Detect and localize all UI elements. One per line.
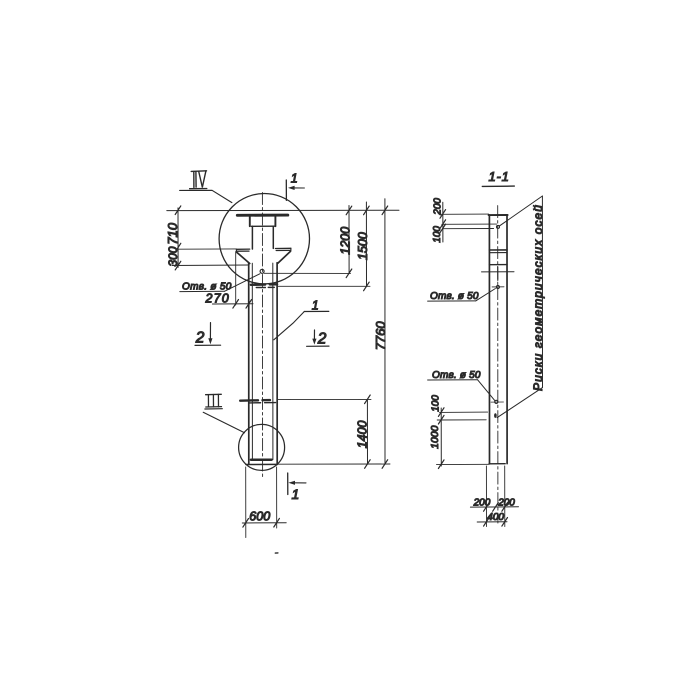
svg-text:2: 2 <box>195 330 205 347</box>
svg-text:1: 1 <box>312 299 319 313</box>
svg-text:1400: 1400 <box>355 420 369 448</box>
svg-text:600: 600 <box>249 510 270 524</box>
svg-text:100: 100 <box>430 395 441 412</box>
svg-text:300: 300 <box>166 246 180 266</box>
svg-text:1200: 1200 <box>339 227 353 255</box>
svg-text:1: 1 <box>291 171 298 185</box>
svg-text:Отв. ø 50: Отв. ø 50 <box>432 370 481 381</box>
svg-text:2: 2 <box>317 330 327 347</box>
svg-text:Риски геометрических осей: Риски геометрических осей <box>531 205 545 391</box>
svg-text:200: 200 <box>473 497 491 508</box>
svg-text:200: 200 <box>432 198 443 216</box>
svg-text:270: 270 <box>205 292 230 306</box>
svg-text:1: 1 <box>292 486 300 502</box>
svg-text:100: 100 <box>432 226 443 243</box>
svg-text:710: 710 <box>165 222 180 244</box>
svg-text:400: 400 <box>487 512 504 523</box>
svg-text:7760: 7760 <box>373 321 388 351</box>
svg-text:1-1: 1-1 <box>489 169 510 184</box>
svg-text:1000: 1000 <box>429 425 441 449</box>
svg-text:1500: 1500 <box>356 232 370 260</box>
svg-text:200: 200 <box>497 497 515 508</box>
